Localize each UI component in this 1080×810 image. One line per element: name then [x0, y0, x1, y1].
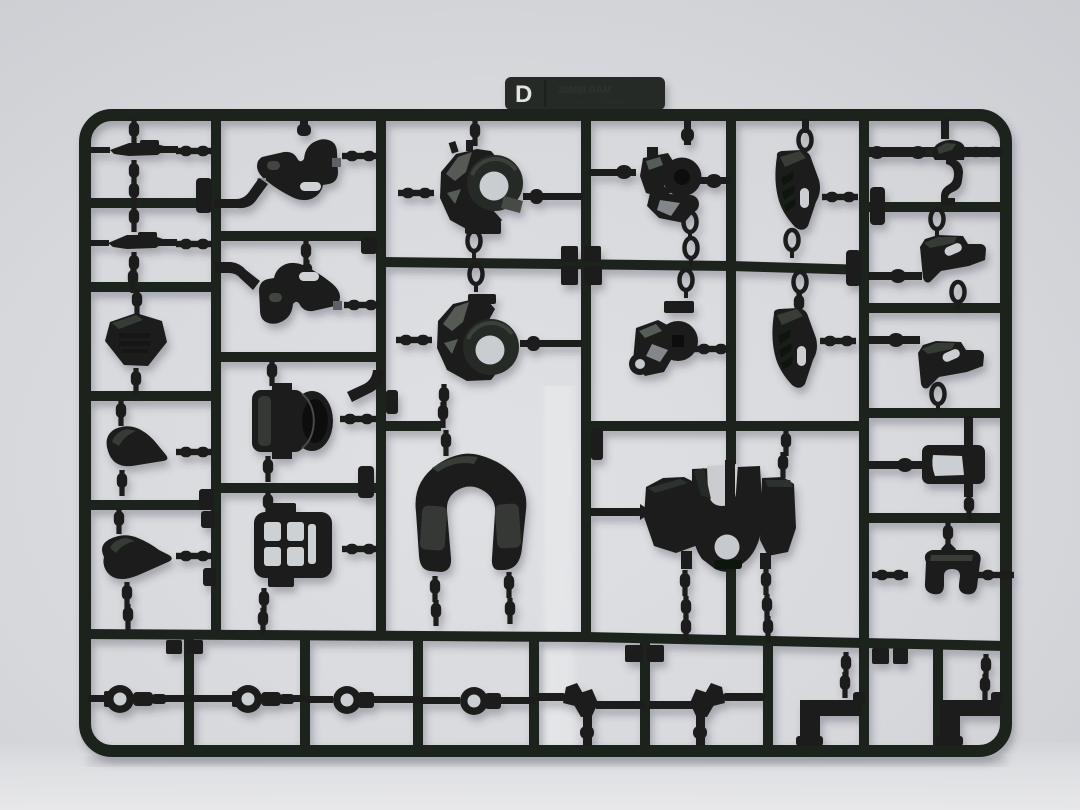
svg-text:PLASTIC MODEL: PLASTIC MODEL [568, 97, 628, 106]
svg-text:D: D [515, 81, 532, 108]
svg-text:30MM BAM: 30MM BAM [558, 85, 611, 96]
